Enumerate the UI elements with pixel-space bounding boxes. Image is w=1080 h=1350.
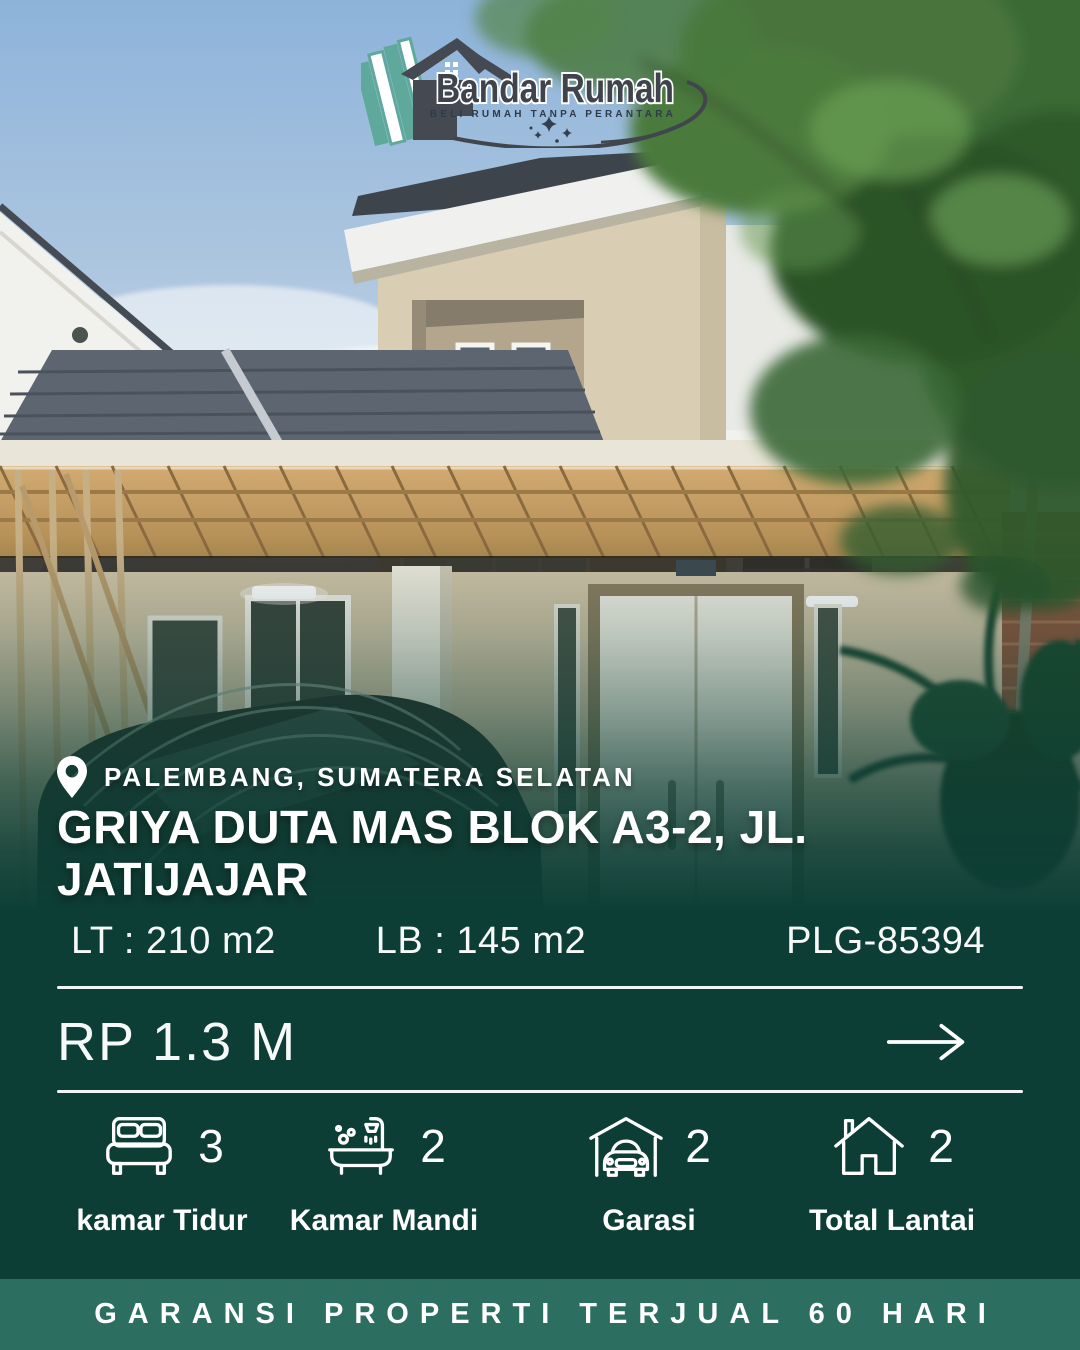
land-area: LT : 210 m2 bbox=[71, 920, 276, 963]
brand-name: Bandar Rumah bbox=[436, 65, 674, 111]
feature-bathrooms: 2 Kamar Mandi bbox=[269, 1104, 499, 1238]
floors-icon bbox=[830, 1110, 908, 1182]
property-listing-poster: Bandar Rumah BELI RUMAH TANPA PERANTARA … bbox=[0, 0, 1080, 1350]
listing-info: PALEMBANG, SUMATERA SELATAN GRIYA DUTA M… bbox=[0, 0, 1080, 1350]
arrow-right-icon[interactable] bbox=[886, 1019, 970, 1065]
sparkle-icon bbox=[530, 116, 573, 143]
brand-tagline: BELI RUMAH TANPA PERANTARA bbox=[430, 109, 676, 120]
bathrooms-label: Kamar Mandi bbox=[269, 1204, 499, 1238]
bed-icon bbox=[100, 1110, 178, 1182]
feature-bedrooms: 3 kamar Tidur bbox=[47, 1104, 277, 1238]
guarantee-text: GARANSI PROPERTI TERJUAL 60 HARI bbox=[83, 1298, 997, 1331]
price-row: RP 1.3 M bbox=[57, 1006, 1023, 1078]
building-area: LB : 145 m2 bbox=[376, 920, 586, 963]
page-title: GRIYA DUTA MAS BLOK A3-2, JL. JATIJAJAR bbox=[57, 802, 907, 905]
divider-top bbox=[57, 986, 1023, 989]
bedrooms-label: kamar Tidur bbox=[47, 1204, 277, 1238]
bathrooms-count: 2 bbox=[420, 1119, 446, 1173]
feature-floors: 2 Total Lantai bbox=[777, 1104, 1007, 1238]
location-text: PALEMBANG, SUMATERA SELATAN bbox=[104, 762, 636, 793]
location-row: PALEMBANG, SUMATERA SELATAN bbox=[57, 756, 636, 798]
garage-count: 2 bbox=[685, 1119, 711, 1173]
stats-row: LT : 210 m2 LB : 145 m2 PLG-85394 bbox=[57, 920, 1023, 963]
price-text: RP 1.3 M bbox=[57, 1011, 297, 1073]
floors-label: Total Lantai bbox=[777, 1204, 1007, 1238]
garage-label: Garasi bbox=[534, 1204, 764, 1238]
floors-count: 2 bbox=[928, 1119, 954, 1173]
feature-garage: 2 Garasi bbox=[534, 1104, 764, 1238]
guarantee-banner: GARANSI PROPERTI TERJUAL 60 HARI bbox=[0, 1279, 1080, 1350]
listing-code: PLG-85394 bbox=[786, 920, 985, 963]
map-pin-icon bbox=[57, 756, 87, 798]
garage-icon bbox=[587, 1110, 665, 1182]
features-row: 3 kamar Tidur 2 Kam bbox=[0, 1104, 1080, 1244]
divider-bottom bbox=[57, 1090, 1023, 1093]
bath-icon bbox=[322, 1110, 400, 1182]
bedrooms-count: 3 bbox=[198, 1119, 224, 1173]
bandar-rumah-logo: Bandar Rumah BELI RUMAH TANPA PERANTARA bbox=[361, 36, 713, 148]
